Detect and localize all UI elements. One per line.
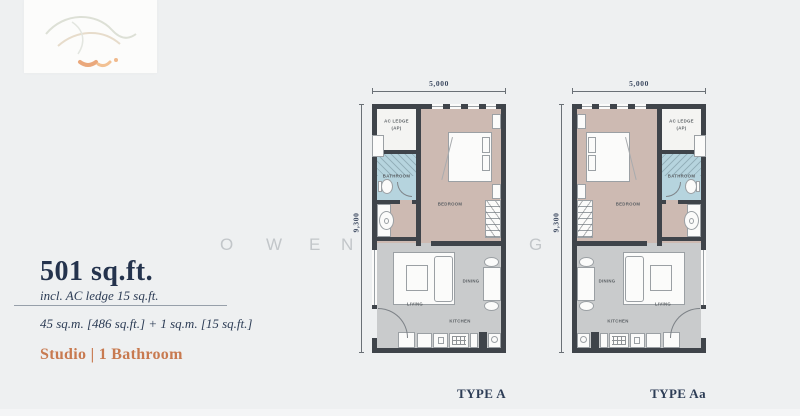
shower-glass <box>377 154 416 176</box>
sofa-backrest <box>434 256 453 302</box>
type-a-label: TYPE A <box>372 386 506 402</box>
kitchen-label: KITCHEN <box>606 320 629 324</box>
dimension-height-label: 9,300 <box>552 203 561 243</box>
dimension-height-label: 9,300 <box>352 203 361 243</box>
bedroom-label: BEDROOM <box>434 203 466 207</box>
pillow <box>588 155 596 171</box>
window <box>635 104 646 109</box>
pillow <box>482 137 490 153</box>
wall <box>431 241 506 246</box>
dimension-width-label: 5,000 <box>372 79 506 88</box>
dining-table <box>577 267 595 301</box>
window <box>599 104 610 109</box>
dimension-tick <box>572 88 573 94</box>
washbasin-drain <box>689 218 694 224</box>
dining-chair <box>579 301 594 311</box>
wall <box>416 241 421 246</box>
area-title: 501 sq.ft. <box>40 256 153 288</box>
divider-line <box>14 305 227 306</box>
kitchen-counter <box>646 333 661 348</box>
ac-ledge-label: AC LEDGE <box>382 120 410 124</box>
dining-chair <box>579 257 594 267</box>
sink-basin <box>438 337 444 344</box>
toilet-icon <box>381 179 393 194</box>
floor-plan: AC LEDGE (AP) BATHROOM BEDROOM LIVING DI… <box>372 104 506 353</box>
watermark-letter: W <box>266 236 282 253</box>
pillow <box>482 155 490 171</box>
wall <box>372 200 400 204</box>
wall <box>657 200 666 204</box>
sofa-cushion <box>650 265 672 291</box>
bedroom-label: BEDROOM <box>612 203 644 207</box>
wall <box>657 109 662 241</box>
toilet-tank <box>378 181 382 192</box>
floor-plan-type-a: 5,000 9,300 <box>372 104 506 353</box>
wall <box>372 237 421 241</box>
shower-glass <box>662 154 701 176</box>
page-background: { "page": { "bg": "#eef0f1" }, "watermar… <box>0 0 800 416</box>
dimension-width-label: 5,000 <box>572 79 706 88</box>
sink-basin <box>634 337 640 344</box>
bottom-strip <box>0 409 800 416</box>
wall <box>657 241 662 246</box>
wall <box>701 305 706 309</box>
dimension-tick <box>559 352 564 353</box>
ac-ledge-label2: (AP) <box>382 127 410 131</box>
dimension-width-line <box>372 91 506 92</box>
window <box>372 250 377 305</box>
wall <box>372 348 506 353</box>
window <box>468 104 479 109</box>
wardrobe <box>485 200 501 238</box>
dimension-tick <box>359 352 364 353</box>
dining-table <box>483 267 501 301</box>
dimension-height-line <box>561 104 562 353</box>
window <box>486 104 496 109</box>
wall <box>572 348 706 353</box>
wall <box>479 332 487 348</box>
side-table <box>492 184 501 199</box>
window <box>617 104 628 109</box>
sofa-cushion <box>406 265 428 291</box>
wall <box>701 104 706 250</box>
brand-logo <box>24 0 157 73</box>
wall <box>372 305 377 309</box>
side-table <box>492 114 501 129</box>
wall <box>416 109 421 241</box>
stove-grate <box>452 336 466 345</box>
wall <box>372 104 377 250</box>
stove-grate <box>612 336 626 345</box>
wall <box>501 104 506 353</box>
brand-logo-art <box>24 0 157 73</box>
floor-plan: AC LEDGE (AP) BATHROOM BEDROOM LIVING DI… <box>572 104 706 353</box>
window <box>450 104 461 109</box>
bathroom-label: BATHROOM <box>667 175 695 179</box>
side-table <box>577 114 586 129</box>
side-table <box>577 184 586 199</box>
dimension-tick <box>359 104 364 105</box>
dining-chair <box>484 257 499 267</box>
config-text: Studio | 1 Bathroom <box>40 346 183 364</box>
dining-label: DINING <box>598 280 617 284</box>
kitchen-counter <box>417 333 432 348</box>
wall <box>572 241 647 246</box>
type-aa-label: TYPE Aa <box>572 386 706 402</box>
dimension-width-line <box>572 91 706 92</box>
dining-label: DINING <box>462 280 481 284</box>
kitchen-cabinet <box>470 333 478 348</box>
wall <box>412 200 421 204</box>
ac-unit <box>694 135 706 157</box>
kitchen-label: KITCHEN <box>448 320 471 324</box>
dining-chair <box>484 301 499 311</box>
window <box>432 104 443 109</box>
wall <box>678 200 706 204</box>
ac-unit <box>372 135 384 157</box>
wardrobe <box>577 200 593 238</box>
washbasin-drain <box>384 218 389 224</box>
area-note: incl. AC ledge 15 sq.ft. <box>40 288 159 304</box>
living-label: LIVING <box>401 303 430 307</box>
living-label: LIVING <box>649 303 678 307</box>
metric-text: 45 sq.m. [486 sq.ft.] + 1 sq.m. [15 sq.f… <box>40 316 252 332</box>
wall <box>657 237 706 241</box>
ac-ledge-label: AC LEDGE <box>667 120 695 124</box>
watermark-letter: G <box>529 236 542 253</box>
floor-plan-type-aa: 5,000 9,300 <box>572 104 706 353</box>
ac-ledge-label2: (AP) <box>667 127 695 131</box>
dimension-tick <box>372 88 373 94</box>
sofa-backrest <box>625 256 644 302</box>
washing-machine-door <box>580 336 587 343</box>
toilet-tank <box>696 181 700 192</box>
watermark-letter: E <box>309 236 320 253</box>
kitchen-cabinet <box>600 333 608 348</box>
washing-machine-door <box>491 336 498 343</box>
wall <box>591 332 599 348</box>
pillow <box>588 137 596 153</box>
watermark-letter: O <box>220 236 233 253</box>
window <box>701 250 706 305</box>
dimension-tick <box>705 88 706 94</box>
dimension-tick <box>559 104 564 105</box>
dimension-tick <box>505 88 506 94</box>
dimension-height-line <box>361 104 362 353</box>
bathroom-label: BATHROOM <box>382 175 410 179</box>
window <box>582 104 592 109</box>
